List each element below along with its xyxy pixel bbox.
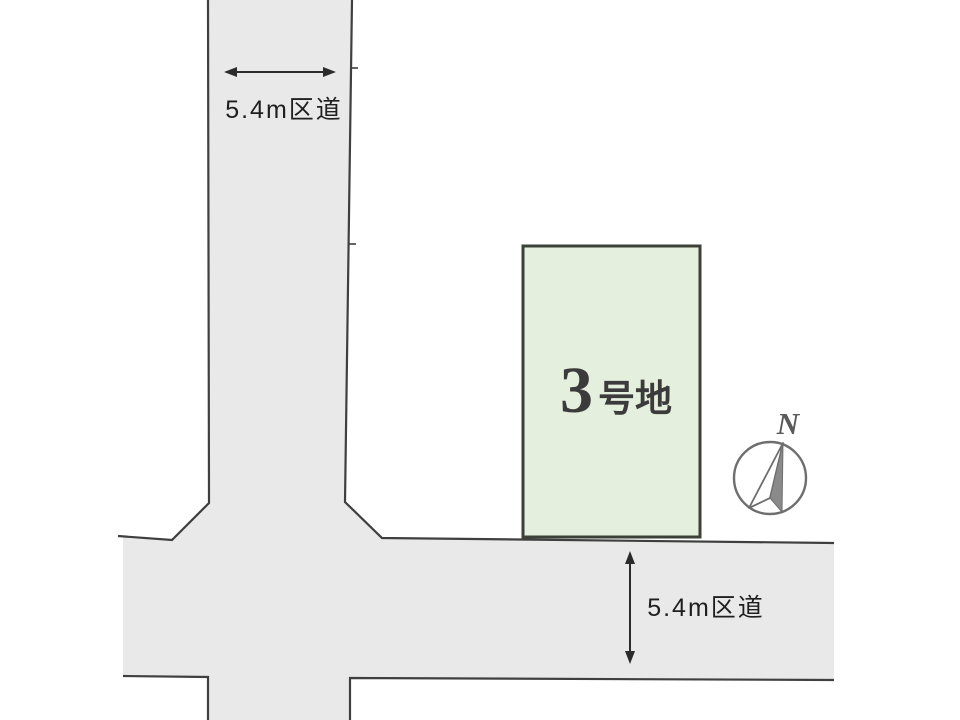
north-label: N — [776, 406, 801, 441]
road-edge-left — [118, 0, 209, 540]
road-edge-bottom-left — [123, 676, 208, 720]
road-edge-bottom-right — [350, 678, 834, 720]
site-plan-drawing: 5.4m区道 5.4m区道 3 号地 N — [0, 0, 960, 720]
vertical-road-label: 5.4m区道 — [225, 96, 343, 124]
lot-number: 3 — [560, 354, 593, 427]
horizontal-road-label: 5.4m区道 — [647, 594, 765, 622]
site-plan-svg: 5.4m区道 5.4m区道 3 号地 N — [0, 0, 960, 720]
lot-suffix: 号地 — [598, 378, 672, 420]
north-compass-icon — [734, 442, 806, 514]
